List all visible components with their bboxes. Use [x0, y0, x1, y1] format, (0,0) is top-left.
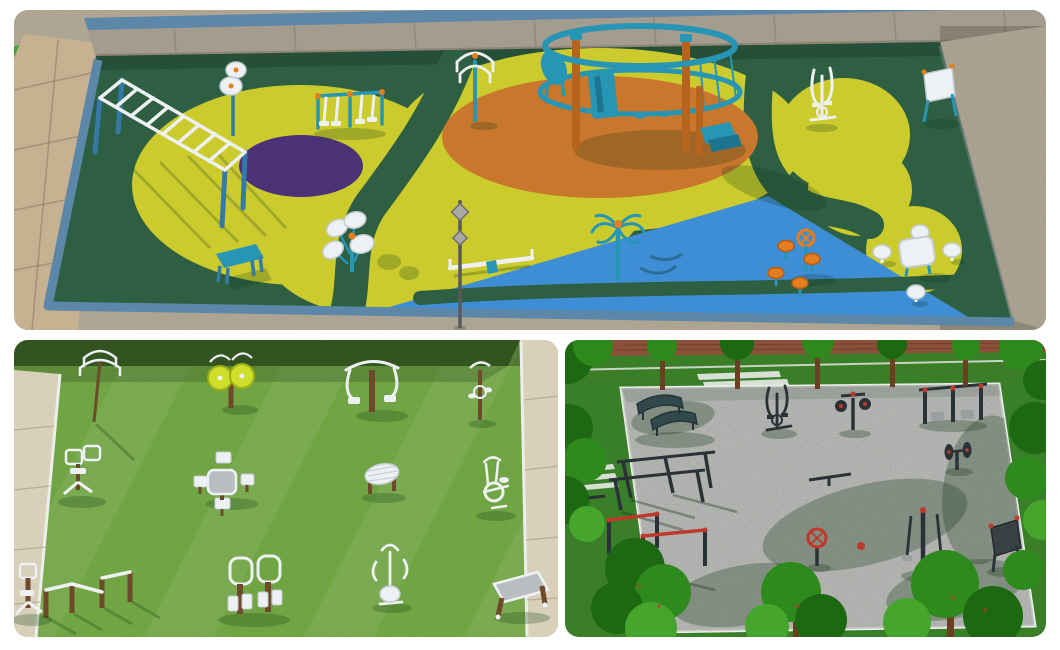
lawn-texture: [14, 340, 558, 637]
panel-lawn-gym[interactable]: [14, 340, 558, 637]
panel-colorful-park[interactable]: [14, 10, 1046, 330]
gravel-court-render: [565, 340, 1046, 637]
purple-circle: [239, 135, 363, 197]
colorful-park-render: [14, 10, 1046, 330]
lawn-gym-render: [14, 340, 558, 637]
hedge-shadow: [14, 366, 508, 382]
render-collage: [0, 0, 1060, 650]
panel-gravel-court[interactable]: [565, 340, 1046, 637]
